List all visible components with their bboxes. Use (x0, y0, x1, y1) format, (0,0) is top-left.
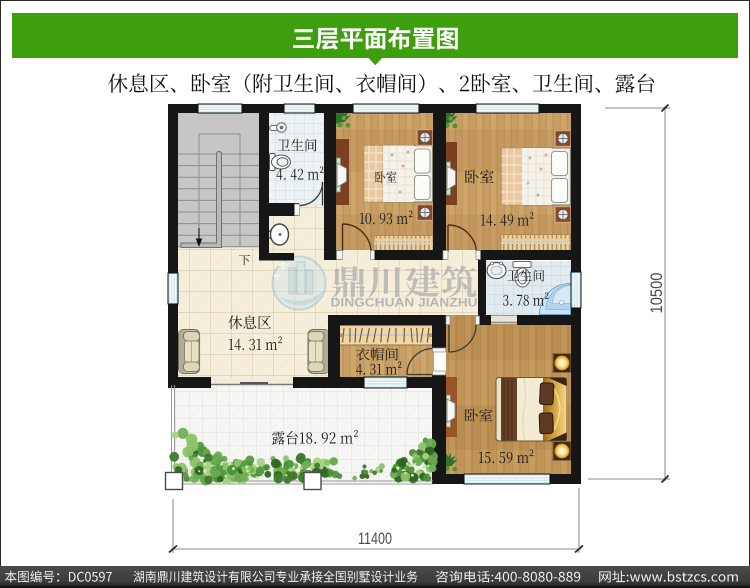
svg-text:11400: 11400 (358, 530, 392, 548)
svg-text:DINGCHUAN JIANZHU: DINGCHUAN JIANZHU (331, 296, 478, 310)
svg-text:10500: 10500 (648, 273, 666, 314)
